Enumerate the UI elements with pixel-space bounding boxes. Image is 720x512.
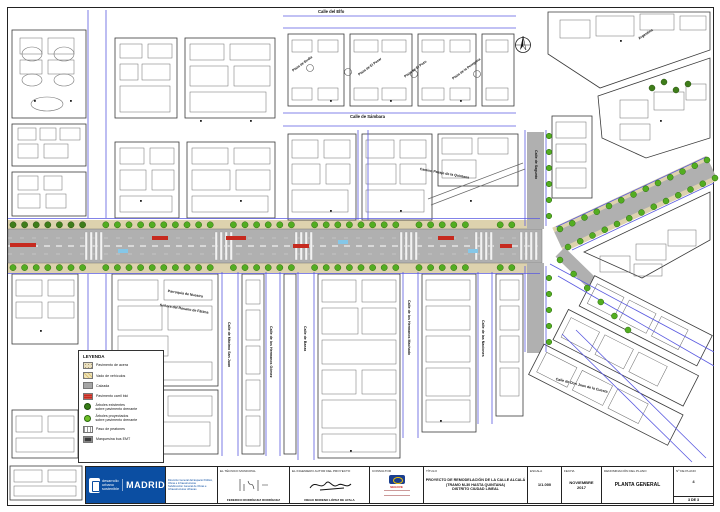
escala-value: 1/1.000 bbox=[538, 482, 551, 487]
street-label-baeza: Calle de Baeza bbox=[302, 326, 306, 351]
legend-item: Calzada bbox=[83, 382, 161, 389]
fecha-year: 2017 bbox=[577, 485, 586, 490]
legend-swatch-marq-icon bbox=[83, 436, 93, 443]
legend-title: LEYENDA bbox=[83, 354, 161, 359]
consultor-label: CONSULTOR bbox=[372, 469, 391, 473]
tecnico-cell: EL TÉCNICO MUNICIPAL FEDERICO RODRÍGUEZ … bbox=[218, 467, 290, 503]
legend-item-label: Árboles proyectadossobre pavimento drena… bbox=[96, 414, 138, 422]
tecnico-signature bbox=[234, 476, 274, 494]
north-arrow-icon bbox=[515, 36, 531, 53]
ingeniero-cell: EL INGENIERO AUTOR DEL PROYECTO DIEGO MO… bbox=[290, 467, 370, 503]
ingeniero-name: DIEGO MORENO LÓPEZ DE AYALA bbox=[290, 498, 369, 502]
logo-line2: sostenible bbox=[102, 487, 119, 491]
legend-swatch-vado-icon bbox=[83, 372, 93, 379]
legend-item-label: Vado de vehículos bbox=[96, 374, 125, 378]
legend-item-label: Marquesina bus EMT bbox=[96, 437, 130, 441]
legend-item-label: Calzada bbox=[96, 384, 109, 388]
titulo-cell: TÍTULO PROYECTO DE REMODELACIÓN DE LA CA… bbox=[424, 467, 528, 503]
legend-item: Pavimento de acera bbox=[83, 362, 161, 369]
legend-item: Árboles existentessobre pavimento drenan… bbox=[83, 403, 161, 411]
legend-item: Vado de vehículos bbox=[83, 372, 161, 379]
street-label-hermanos_machado: Calle de los Hermanos Machado bbox=[406, 300, 410, 355]
legend-item-label: Árboles existentessobre pavimento drenan… bbox=[96, 403, 138, 411]
dept-line: Infraestructuras Urbanas bbox=[168, 488, 197, 491]
sheet-count: 3 DE 3 bbox=[674, 496, 713, 503]
fecha-label: FECHA bbox=[564, 469, 575, 473]
ingeniero-signature bbox=[306, 477, 354, 493]
legend-item: Pavimento carril bici bbox=[83, 393, 161, 400]
num-plano-value: 4 bbox=[692, 479, 694, 484]
street-label-elfo: Calle del Elfo bbox=[318, 10, 344, 14]
tecnico-name: FEDERICO RODRÍGUEZ RODRÍGUEZ bbox=[218, 498, 289, 502]
tecnico-label: EL TÉCNICO MUNICIPAL bbox=[220, 469, 256, 473]
num-plano-cell: Nº DE PLANO 4 3 DE 3 bbox=[674, 467, 714, 503]
plan-sheet: Calle del ElfoCalle de SámbaraPlaza de B… bbox=[0, 0, 720, 512]
legend-item-label: Pavimento de acera bbox=[96, 363, 128, 367]
legend-item: Paso de peatones bbox=[83, 426, 161, 433]
project-title-line3: DISTRITO CIUDAD LINEAL bbox=[452, 487, 499, 492]
consultor-cell: CONSULTOR SEGOVE bbox=[370, 467, 424, 503]
madrid-brand: MADRID bbox=[126, 480, 165, 490]
consultor-logo-icon bbox=[389, 475, 405, 484]
street-label-sambara: Calle de Sámbara bbox=[350, 115, 385, 119]
legend-swatch-paso-icon bbox=[83, 426, 93, 433]
fecha-cell: FECHA NOVIEMBRE 2017 bbox=[562, 467, 602, 503]
legend-item-label: Pavimento carril bici bbox=[96, 394, 128, 398]
madrid-emblem-icon bbox=[89, 478, 100, 493]
legend-item: Árboles proyectadossobre pavimento drena… bbox=[83, 414, 161, 422]
titulo-label: TÍTULO bbox=[426, 469, 437, 473]
legend-swatch-acera-icon bbox=[83, 362, 93, 369]
legend-swatch-bici-icon bbox=[83, 393, 93, 400]
street-label-naciones: Calle de las Naciones bbox=[480, 320, 484, 357]
num-plano-label: Nº DE PLANO bbox=[676, 469, 696, 473]
legend-item: Marquesina bus EMT bbox=[83, 436, 161, 443]
street-label-maximo: Calle de Máximo San Juan bbox=[226, 322, 230, 367]
legend-box: LEYENDA Pavimento de aceraVado de vehícu… bbox=[78, 350, 164, 463]
legend-swatch-calzada-icon bbox=[83, 382, 93, 389]
consultor-smallprint bbox=[384, 490, 410, 496]
plano-name: PLANTA GENERAL bbox=[615, 482, 661, 488]
denominacion-cell: DENOMINACIÓN DEL PLANO PLANTA GENERAL bbox=[602, 467, 674, 503]
department-cell: Dirección General del Espacio Público,Ob… bbox=[166, 467, 218, 503]
consultor-brand: SEGOVE bbox=[390, 485, 403, 489]
logo-line1: desarrollo urbano bbox=[102, 479, 119, 487]
title-block: desarrollo urbano sostenible MADRID Dire… bbox=[85, 466, 713, 504]
denominacion-label: DENOMINACIÓN DEL PLANO bbox=[604, 469, 647, 473]
legend-item-label: Paso de peatones bbox=[96, 427, 125, 431]
escala-label: ESCALA bbox=[530, 469, 542, 473]
ingeniero-label: EL INGENIERO AUTOR DEL PROYECTO bbox=[292, 469, 350, 473]
legend-swatch-arbol-e-icon bbox=[84, 403, 91, 410]
legend-swatch-arbol-p-icon bbox=[84, 415, 91, 422]
street-label-hermanos_gomez: Calle de los Hermanos Gómez bbox=[268, 326, 272, 378]
madrid-logo: desarrollo urbano sostenible MADRID bbox=[86, 467, 166, 503]
street-label-sagunto: Calle de Sagunto bbox=[533, 150, 537, 179]
escala-cell: ESCALA 1/1.000 bbox=[528, 467, 562, 503]
